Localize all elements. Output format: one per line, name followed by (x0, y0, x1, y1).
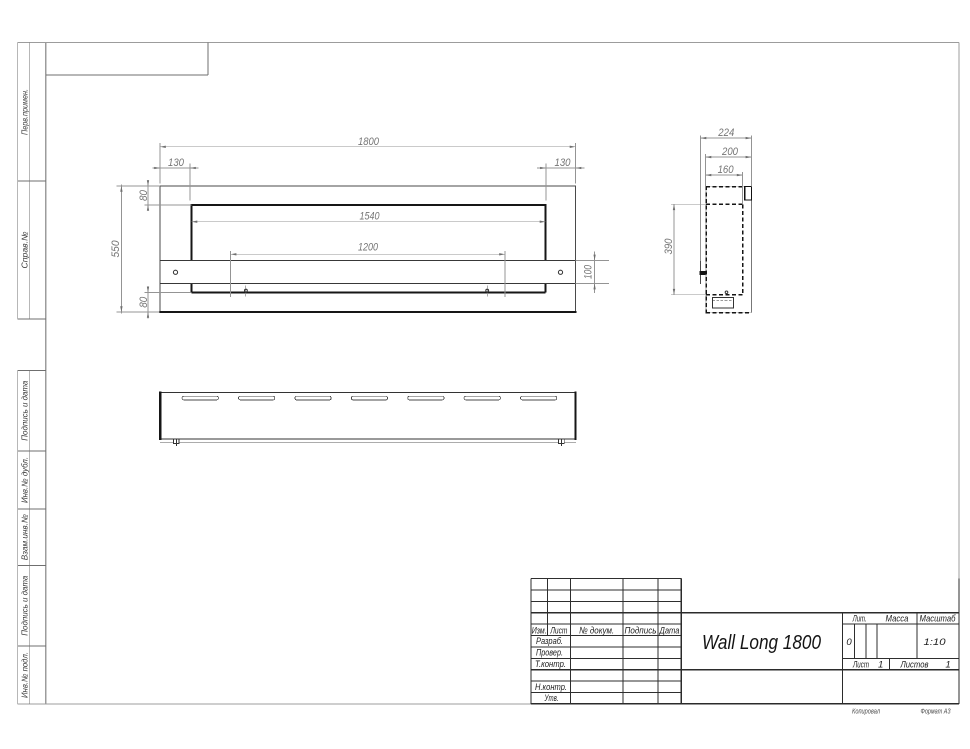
svg-text:Wall Long 1800: Wall Long 1800 (702, 632, 821, 654)
svg-text:100: 100 (583, 264, 595, 279)
svg-text:160: 160 (718, 164, 735, 176)
svg-text:Инв.№ дубл.: Инв.№ дубл. (19, 457, 29, 503)
svg-text:Масштаб: Масштаб (920, 614, 956, 625)
svg-text:Лист: Лист (852, 659, 869, 670)
svg-text:1200: 1200 (358, 241, 379, 253)
svg-text:1800: 1800 (358, 136, 380, 148)
svg-text:0: 0 (846, 637, 852, 648)
svg-text:80: 80 (138, 189, 150, 201)
svg-text:130: 130 (168, 157, 185, 169)
svg-text:Масса: Масса (886, 614, 909, 625)
svg-text:Подпись и дата: Подпись и дата (19, 380, 29, 440)
svg-text:Лист: Лист (550, 625, 568, 636)
svg-text:Инв.№ подл.: Инв.№ подл. (19, 652, 29, 698)
svg-text:Лит.: Лит. (852, 614, 867, 625)
svg-text:Разраб.: Разраб. (536, 636, 563, 647)
svg-text:Справ.№: Справ.№ (19, 232, 29, 269)
svg-text:550: 550 (110, 240, 122, 258)
svg-text:Формат А3: Формат А3 (921, 707, 952, 716)
svg-text:1:10: 1:10 (924, 637, 947, 648)
svg-text:№ докум.: № докум. (579, 625, 614, 636)
svg-text:Перв.примен.: Перв.примен. (19, 89, 29, 135)
svg-text:Взам.инв.№: Взам.инв.№ (19, 514, 29, 560)
svg-text:Т.контр.: Т.контр. (535, 659, 566, 670)
svg-text:224: 224 (717, 127, 734, 139)
svg-text:Подпись: Подпись (625, 625, 657, 636)
svg-text:130: 130 (555, 157, 572, 169)
svg-text:1: 1 (878, 659, 883, 670)
svg-text:Провер.: Провер. (536, 648, 563, 659)
svg-text:200: 200 (721, 146, 738, 158)
svg-text:Н.контр.: Н.контр. (535, 682, 567, 693)
svg-text:Подпись и дата: Подпись и дата (19, 575, 29, 635)
svg-text:Дата: Дата (659, 625, 680, 636)
svg-text:Копировал: Копировал (852, 707, 881, 716)
svg-text:1: 1 (945, 659, 950, 670)
svg-text:1540: 1540 (360, 210, 381, 222)
svg-text:80: 80 (138, 296, 150, 308)
svg-text:Листов: Листов (900, 659, 929, 670)
svg-text:Изм.: Изм. (532, 625, 547, 636)
svg-text:390: 390 (663, 238, 675, 255)
svg-text:Утв.: Утв. (544, 693, 559, 704)
